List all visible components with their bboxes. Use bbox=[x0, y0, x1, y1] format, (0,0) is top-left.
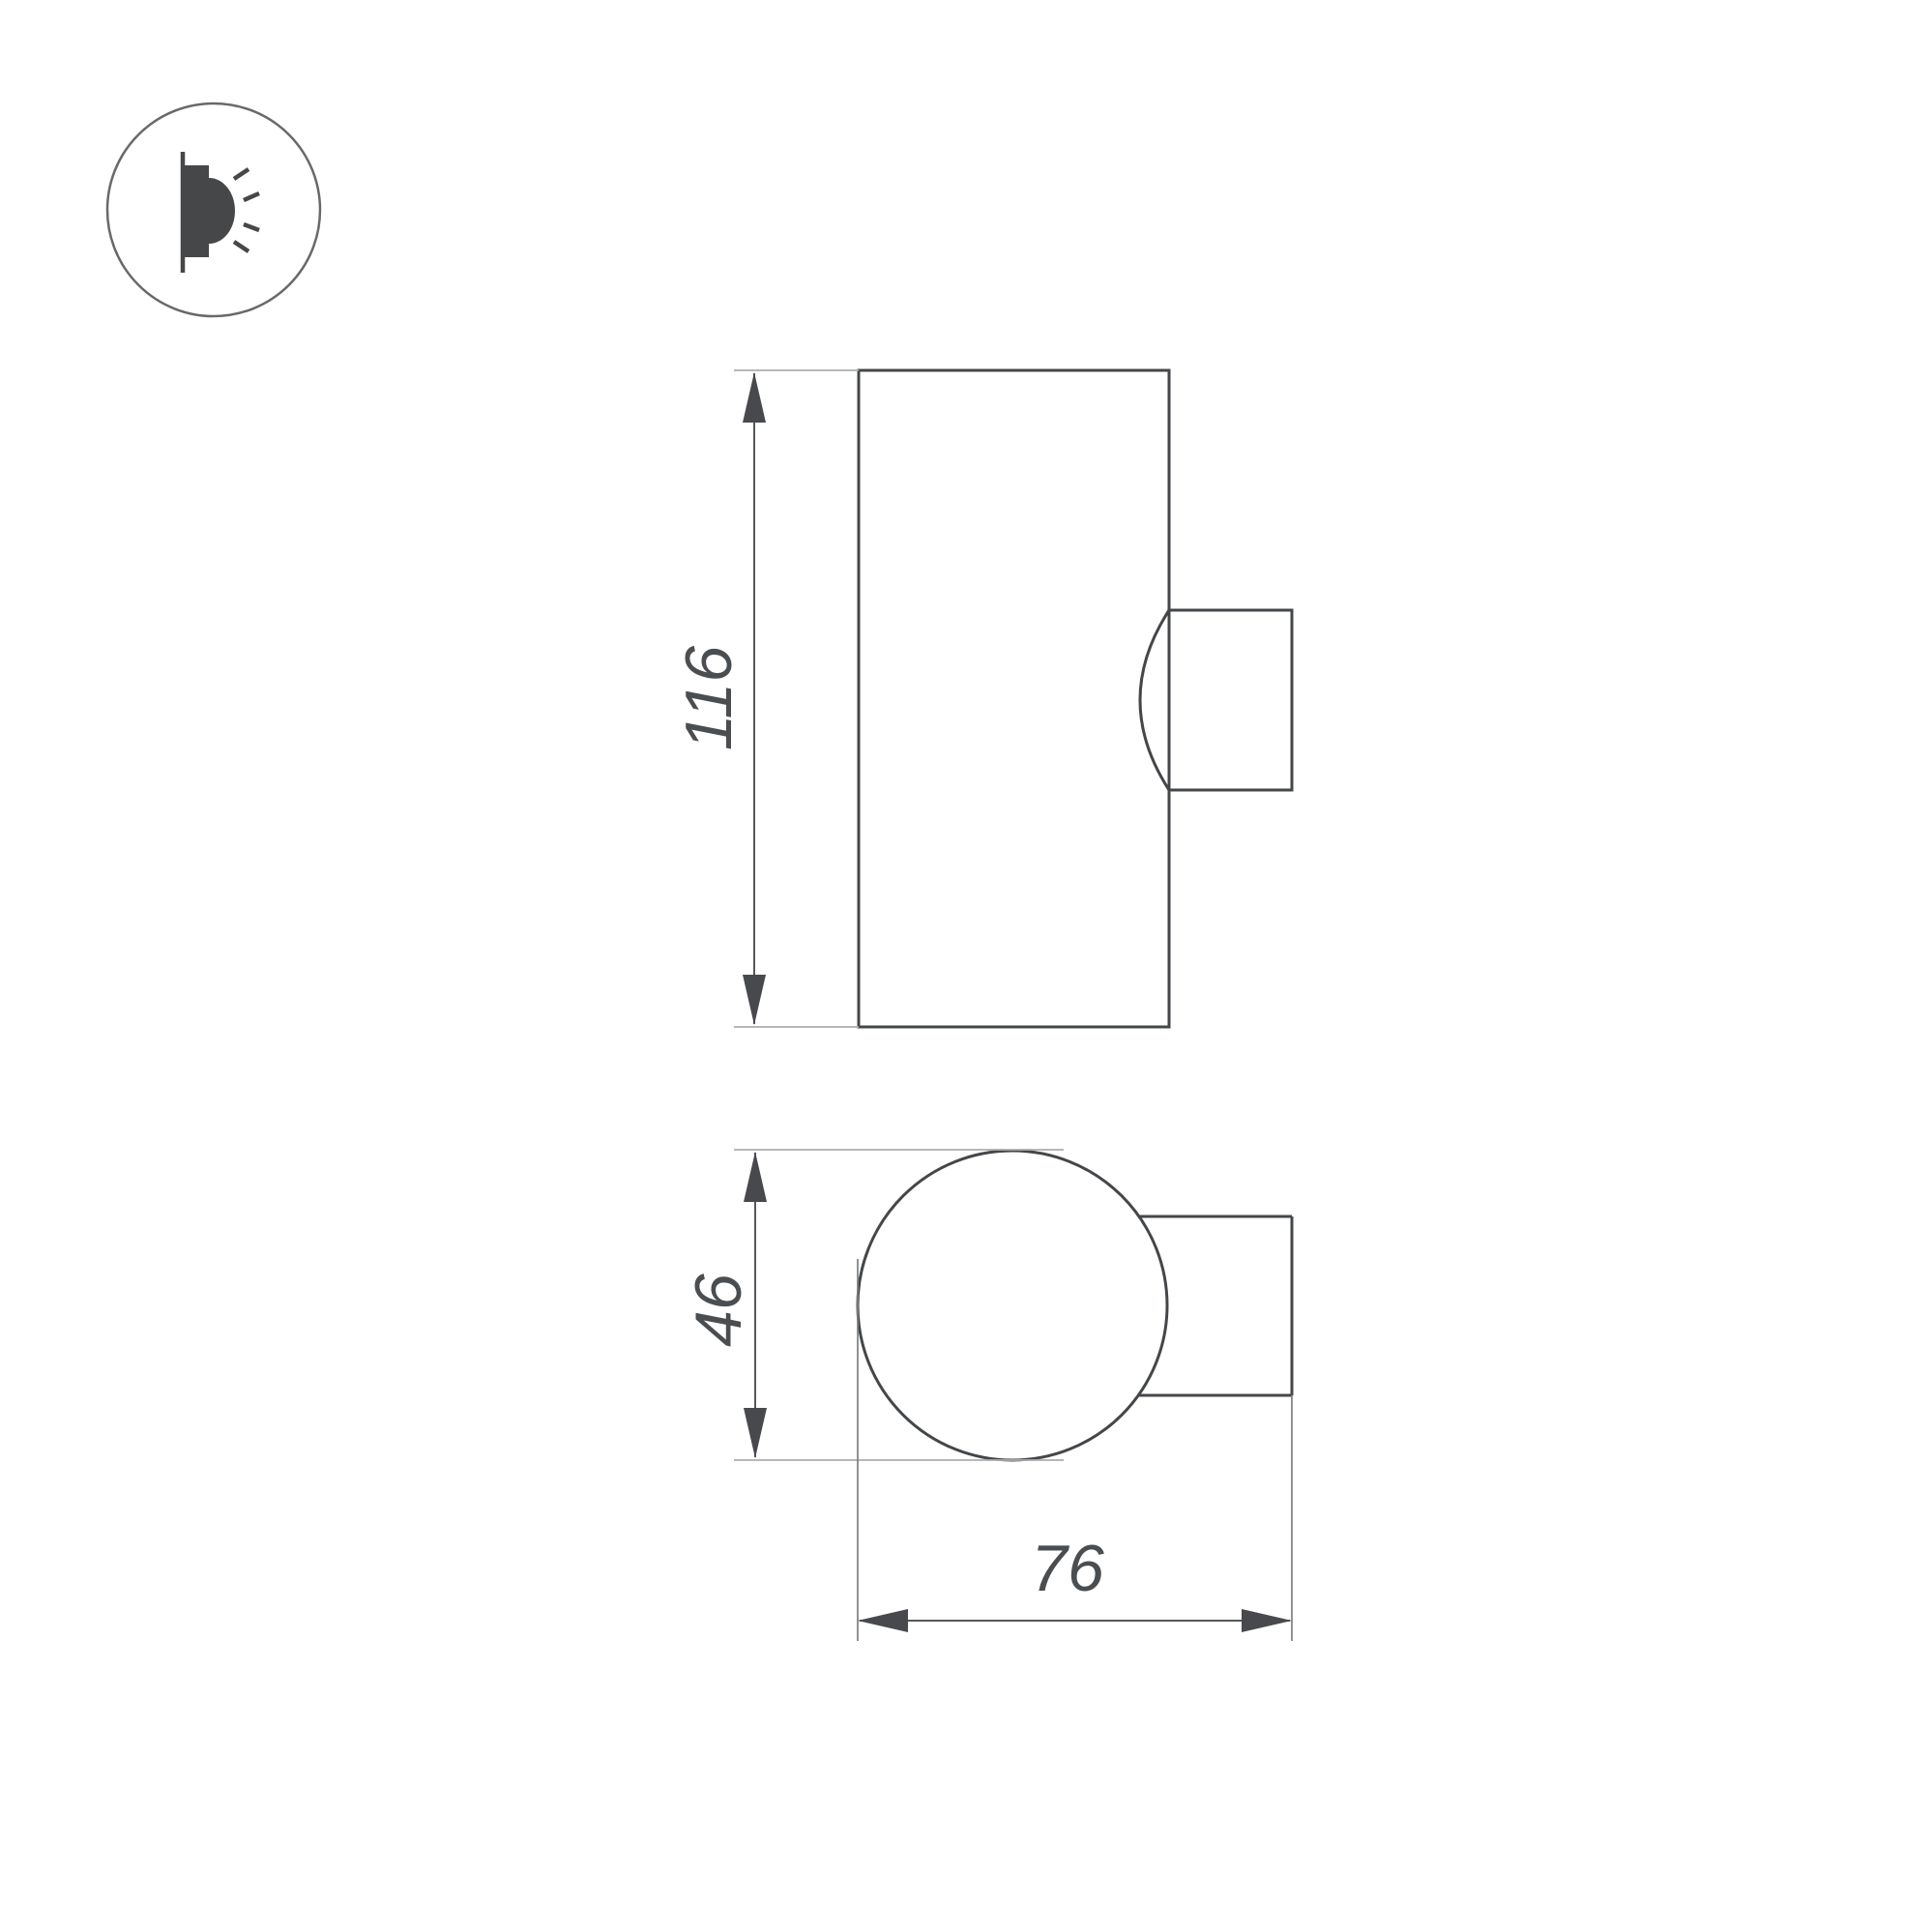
depth-dimension-label: 76 bbox=[1031, 1532, 1104, 1605]
diameter-dimension: 46 bbox=[682, 1150, 1064, 1460]
height-dimension-label: 116 bbox=[672, 646, 746, 751]
front-view bbox=[859, 370, 1292, 1027]
diameter-dimension-label: 46 bbox=[682, 1273, 755, 1347]
body-circle-outline bbox=[858, 1151, 1167, 1460]
dimension-drawing-page: 116 46 76 bbox=[0, 0, 1932, 1932]
lamp-body bbox=[185, 165, 209, 257]
height-dimension: 116 bbox=[672, 370, 859, 1027]
canopy-bracket-outline bbox=[1169, 610, 1292, 790]
cylinder-body-outline bbox=[859, 370, 1169, 1027]
wall-light-badge bbox=[107, 103, 320, 316]
luminaire-dimension-drawing: 116 46 76 bbox=[0, 0, 1932, 1932]
arrow-up-icon bbox=[743, 372, 766, 423]
arrow-down-icon bbox=[744, 1408, 767, 1458]
arrow-up-icon bbox=[744, 1152, 767, 1202]
canopy-arc bbox=[1140, 610, 1169, 790]
arrow-down-icon bbox=[743, 975, 766, 1025]
top-view bbox=[858, 1151, 1292, 1460]
arrow-left-icon bbox=[858, 1609, 908, 1632]
canopy-bracket-outline bbox=[1138, 1216, 1292, 1395]
arrow-right-icon bbox=[1242, 1609, 1292, 1632]
depth-dimension: 76 bbox=[858, 1259, 1292, 1641]
